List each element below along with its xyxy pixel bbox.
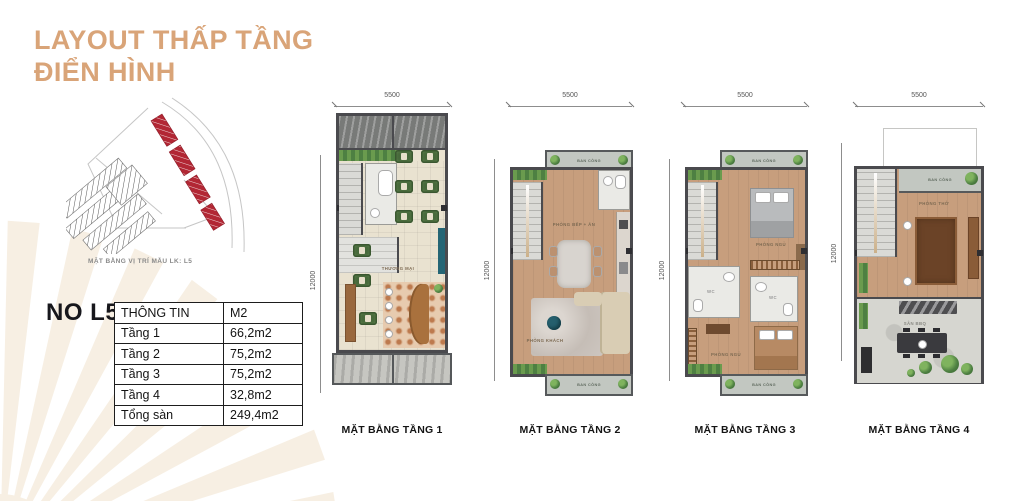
sofa-chaise [574,292,602,306]
room-label-commercial: THƯƠNG MẠI [373,266,423,271]
counter-teal [438,228,445,274]
plan3-body: PHÒNG NGỦ WC WC PHÒNG NGỦ [685,167,808,377]
pillow-icon [755,192,771,203]
pillow-icon [777,330,793,340]
stairs [513,182,543,260]
sink-icon [603,176,613,186]
row-floor4-label: Tầng 4 [115,385,224,406]
bathroom [365,163,397,225]
toilet-icon [693,299,703,312]
area-info-table: THÔNG TIN M2 Tầng 1 66,2m2 Tầng 2 75,2m2… [114,302,303,426]
table-row: Tầng 3 75,2m2 [115,364,303,385]
planter-strip [688,170,722,180]
stair-rail [701,185,704,257]
awning-divider [392,116,394,148]
page-title-line1: LAYOUT THẤP TẦNG [34,24,313,56]
sofa [600,292,630,354]
plan2-body: PHÒNG BẾP + ĂN PHÒNG KHÁCH [510,167,633,377]
balcony-top: BAN CÔNG [899,169,981,193]
bathroom [598,170,630,210]
dining-set-icon [395,180,413,193]
plan4-dim-line [855,106,983,107]
chair-icon [933,328,940,332]
table-row: Tầng 2 75,2m2 [115,344,303,365]
dining-set-icon [353,244,371,257]
planter-strip [859,263,868,293]
bbq-terrace: SÂN BBQ [857,297,981,383]
floor-plan-2: 5500 12000 BAN CÔNG PHÒNG BẾP + ĂN [500,95,640,455]
row-floor2-value: 75,2m2 [224,344,303,365]
room-label-balcony-top: BAN CÔNG [899,178,981,182]
row-total-value: 249,4m2 [224,405,303,426]
chair-icon [549,246,558,257]
page-title-line2: ĐIỂN HÌNH [34,56,313,88]
plan2-vdim-line [494,159,495,381]
plan3-height-dim: 12000 [659,261,666,280]
stairs [688,182,718,260]
bbq-counter [899,301,957,314]
chair-icon [903,354,910,358]
dining-set-icon [395,210,413,223]
bench [345,284,356,342]
planter-strip [339,150,397,161]
plant-icon [941,355,959,373]
plan2-label: MẶT BẰNG TẦNG 2 [488,424,652,436]
room-label-balcony-bottom: BAN CÔNG [722,383,806,387]
plan1-width-dim: 5500 [326,92,458,99]
planter-strip [513,170,547,180]
wardrobe [688,328,697,368]
toilet-icon [615,175,626,189]
stool-icon [385,330,393,338]
chair-icon [918,354,925,358]
row-floor3-value: 75,2m2 [224,364,303,385]
bed [754,326,798,370]
stool-icon [385,288,393,296]
storage-cabinet [861,347,872,373]
room-label-balcony-top: BAN CÔNG [547,159,631,163]
bathtub-icon [378,170,393,196]
steps-divider [392,355,394,383]
toilet-icon [783,303,793,316]
room-label-kitchen: PHÒNG BẾP + ĂN [539,222,609,227]
plan4-body: BAN CÔNG PHÒNG THỜ SÂN BBQ [854,166,984,384]
row-floor1-label: Tầng 1 [115,323,224,344]
stair-rail [874,173,877,254]
room-label-bbq: SÂN BBQ [885,321,945,326]
plan4-width-dim: 5500 [845,92,993,99]
stool-icon [385,316,393,324]
page-title: LAYOUT THẤP TẦNG ĐIỂN HÌNH [34,24,313,89]
awning [339,116,445,150]
blanket [755,356,797,369]
layout-slide: LAYOUT THẤP TẦNG ĐIỂN HÌNH [0,0,1024,501]
planter-strip [688,364,722,374]
floor-plan-1: 5500 12000 [326,95,458,455]
stair-rail [526,185,529,257]
stairs [339,163,363,235]
room-label-living: PHÒNG KHÁCH [515,338,575,343]
worship-table [915,217,957,285]
table-header-info: THÔNG TIN [115,303,224,324]
plate-icon [918,340,927,349]
floor-plan-3: 5500 12000 BAN CÔNG PHÒNG NGỦ [675,95,815,455]
row-floor3-label: Tầng 3 [115,364,224,385]
stool-icon [385,302,393,310]
blanket [751,221,793,237]
unit-name: NO L5 [46,299,119,327]
dining-set-icon [421,180,439,193]
chair-icon [549,266,558,277]
stairs [857,169,897,257]
chair-icon [918,328,925,332]
planter-strip [859,303,868,329]
room-label-balcony-top: BAN CÔNG [722,159,806,163]
plan1-dim-line [334,106,450,107]
dining-set-icon [421,150,439,163]
highlighted-units [147,114,229,230]
chair-icon [933,354,940,358]
plan4-label: MẶT BẰNG TẦNG 4 [833,424,1005,436]
table-header-m2: M2 [224,303,303,324]
balcony-bottom: BAN CÔNG [545,374,633,396]
pillow-icon [759,330,775,340]
dining-set-icon [359,312,377,325]
bathroom: WC [688,266,740,318]
plan4-height-dim: 12000 [831,244,838,263]
dining-table [557,240,591,288]
plan3-width-dim: 5500 [675,92,815,99]
sink-icon [370,208,380,218]
table-header-row: THÔNG TIN M2 [115,303,303,324]
roof-void [883,128,977,168]
bed [750,188,794,238]
bbq-table [897,333,947,353]
cabinet [968,217,979,279]
room-label-worship: PHÒNG THỜ [899,201,969,206]
plant-icon [961,363,973,375]
plan1-label: MẶT BẰNG TẦNG 1 [314,424,470,436]
armchair-teal [547,316,561,330]
chair-icon [593,266,602,277]
plant-icon [434,284,443,293]
room-label-bedroom1: PHÒNG NGỦ [740,242,802,247]
bar-counter [409,284,429,344]
entrance-steps [332,353,452,385]
site-map-caption: MẶT BẰNG VỊ TRÍ MẪU LK: L5 [88,258,192,265]
stool-icon [903,221,912,230]
row-floor4-value: 32,8m2 [224,385,303,406]
row-total-label: Tổng sàn [115,405,224,426]
plan1-height-dim: 12000 [310,271,317,290]
room-label-wc1: WC [707,289,715,294]
area-rug [531,298,603,356]
chair-icon [593,246,602,257]
sink-icon [619,262,628,274]
plan3-vdim-line [669,159,670,381]
plant-icon [919,361,932,374]
balcony-bottom: BAN CÔNG [720,374,808,396]
plan4-vdim-line [841,143,842,361]
table-row: Tầng 4 32,8m2 [115,385,303,406]
row-floor1-value: 66,2m2 [224,323,303,344]
site-map-diagram [66,96,274,254]
plan1-vdim-line [320,155,321,393]
row-floor2-label: Tầng 2 [115,344,224,365]
floor-plan-4: 5500 12000 BAN CÔNG PHÒNG THỜ SÂN BBQ [845,95,993,455]
plan2-dim-line [508,106,632,107]
room-label-bedroom2: PHÒNG NGỦ [700,352,752,357]
table-row: Tổng sàn 249,4m2 [115,405,303,426]
plan3-dim-line [683,106,807,107]
planter-strip [513,364,547,374]
table-row: Tầng 1 66,2m2 [115,323,303,344]
chair-icon [903,328,910,332]
plan3-label: MẶT BẰNG TẦNG 3 [663,424,827,436]
wardrobe [750,260,800,270]
dining-set-icon [395,150,413,163]
stool-icon [903,277,912,286]
dining-set-icon [421,210,439,223]
sink-icon [755,282,767,292]
plan2-height-dim: 12000 [484,261,491,280]
desk [706,324,730,334]
bathroom: WC [750,276,798,322]
pillow-icon [773,192,789,203]
plant-icon [907,369,915,377]
sink-icon [723,272,735,282]
room-label-balcony-bottom: BAN CÔNG [547,383,631,387]
plan1-body: THƯƠNG MẠI [336,113,448,353]
stove-icon [619,220,628,229]
plan2-width-dim: 5500 [500,92,640,99]
room-label-wc2: WC [769,295,777,300]
